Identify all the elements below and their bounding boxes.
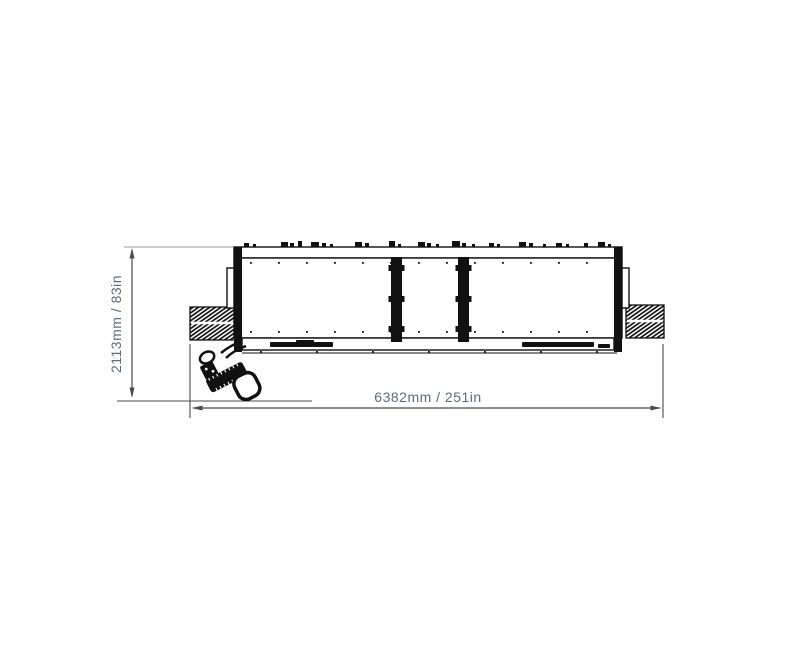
- fitting-mark: [472, 244, 475, 247]
- fitting-mark: [253, 244, 256, 247]
- fitting-mark: [427, 243, 431, 247]
- divider-tab: [402, 326, 405, 332]
- divider-tab: [389, 265, 392, 271]
- rivet-dot: [334, 331, 336, 333]
- fitting-mark: [244, 243, 249, 247]
- rivet-dot: [250, 262, 252, 264]
- drawing-canvas: 2113mm / 83in 6382mm / 251in: [0, 0, 800, 668]
- rivet-dot: [428, 351, 430, 353]
- rivet-dot: [484, 351, 486, 353]
- fitting-mark: [298, 241, 302, 247]
- right-tyre: [626, 305, 664, 338]
- fitting-mark: [566, 244, 569, 247]
- width-dimension-label: 6382mm / 251in: [374, 389, 481, 405]
- rivet-dot: [474, 262, 476, 264]
- fitting-mark: [365, 243, 369, 247]
- machine-drawing: [190, 241, 664, 413]
- skid-bar: [522, 342, 594, 347]
- divider-tab: [469, 265, 472, 271]
- rivet-dot: [418, 262, 420, 264]
- rivet-dot: [390, 331, 392, 333]
- divider-tab: [469, 296, 472, 302]
- rivet-dot: [530, 262, 532, 264]
- divider-tab: [389, 296, 392, 302]
- rivet-dot: [250, 331, 252, 333]
- rivet-dot: [278, 331, 280, 333]
- rivet-dot: [334, 262, 336, 264]
- fitting-mark: [452, 241, 460, 247]
- fitting-mark: [462, 243, 466, 247]
- left-frame-post: [234, 247, 242, 352]
- dimension-drawing-svg: 2113mm / 83in 6382mm / 251in: [0, 0, 800, 668]
- fitting-mark: [489, 243, 494, 247]
- height-arrow-down-icon: [130, 388, 135, 399]
- fitting-mark: [608, 244, 611, 247]
- fitting-mark: [543, 244, 546, 247]
- fitting-mark: [497, 244, 500, 247]
- rivet-dot: [502, 262, 504, 264]
- rivet-dot: [306, 331, 308, 333]
- rivet-dot: [446, 262, 448, 264]
- divider-tab: [469, 326, 472, 332]
- fitting-mark: [519, 242, 526, 247]
- centre-divider: [458, 257, 469, 342]
- fitting-mark: [584, 243, 588, 247]
- rivet-dot: [390, 262, 392, 264]
- rivet-dot: [502, 331, 504, 333]
- rivet-dot: [558, 331, 560, 333]
- fitting-mark: [355, 242, 362, 247]
- rivet-dot: [306, 262, 308, 264]
- rivet-dot: [372, 351, 374, 353]
- height-arrow-up-icon: [130, 248, 135, 259]
- fitting-mark: [330, 244, 333, 247]
- skid-bar: [598, 344, 610, 348]
- divider-tab: [456, 296, 459, 302]
- fitting-mark: [436, 244, 439, 247]
- fitting-mark: [322, 243, 326, 247]
- rivet-dot: [586, 262, 588, 264]
- fitting-mark: [556, 243, 562, 247]
- top-rail: [234, 247, 622, 258]
- rivet-dot: [558, 262, 560, 264]
- divider-tab: [456, 326, 459, 332]
- fitting-mark: [418, 242, 425, 247]
- right-frame-post: [614, 247, 622, 352]
- rivet-dot: [586, 331, 588, 333]
- rivet-dot: [362, 331, 364, 333]
- height-dimension-label: 2113mm / 83in: [108, 275, 124, 373]
- rivet-dot: [474, 331, 476, 333]
- divider-tab: [402, 265, 405, 271]
- centre-divider: [391, 257, 402, 342]
- fitting-mark: [281, 242, 288, 247]
- rivet-dot: [260, 351, 262, 353]
- rivet-dot: [530, 331, 532, 333]
- rivet-dot: [596, 351, 598, 353]
- width-arrow-right-icon: [651, 406, 662, 411]
- rivet-dot: [418, 331, 420, 333]
- fitting-mark: [389, 241, 395, 247]
- main-frame: [234, 258, 622, 338]
- fitting-mark: [290, 243, 294, 247]
- divider-tab: [456, 265, 459, 271]
- left-side-plate: [227, 268, 234, 308]
- rivet-dot: [278, 262, 280, 264]
- skid-bar: [296, 340, 314, 343]
- fitting-mark: [311, 242, 319, 247]
- fitting-mark: [598, 242, 605, 247]
- left-tyre: [190, 307, 237, 340]
- width-dimension: 6382mm / 251in: [190, 344, 663, 418]
- rivet-dot: [362, 262, 364, 264]
- width-arrow-left-icon: [192, 406, 203, 411]
- fitting-mark: [398, 244, 401, 247]
- divider-tab: [402, 296, 405, 302]
- rivet-dot: [540, 351, 542, 353]
- rivet-dot: [446, 331, 448, 333]
- rivet-dot: [316, 351, 318, 353]
- top-fittings: [244, 241, 611, 247]
- fitting-mark: [529, 243, 533, 247]
- right-side-plate: [622, 268, 629, 308]
